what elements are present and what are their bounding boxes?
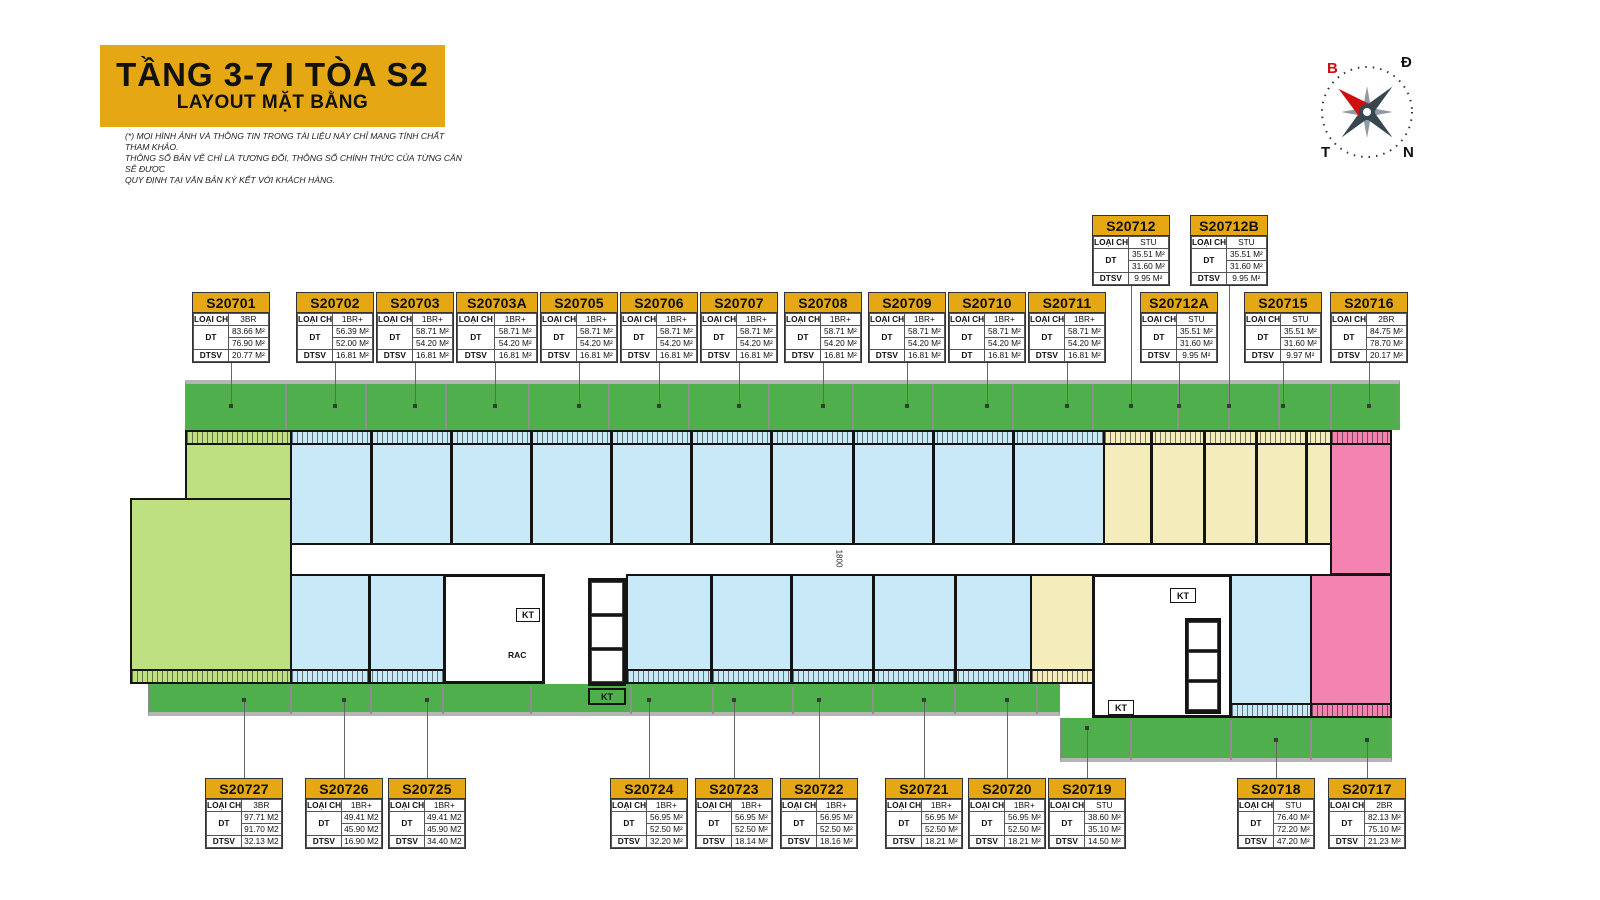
unit-balcony-label: DTSV (786, 350, 821, 362)
unit-area-label: DT (194, 326, 229, 350)
leader-dot (1005, 698, 1009, 702)
unit-card: S20707 LOẠI CH 1BR+ DT 58.71 M² 54.20 M²… (700, 292, 778, 363)
unit-info-table: LOẠI CH 1BR+ DT 56.39 M² 52.00 M² DTSV 1… (297, 313, 373, 362)
unit-card: S20712B LOẠI CH STU DT 35.51 M² 31.60 M²… (1190, 215, 1268, 286)
unit-card: S20727 LOẠI CH 3BR DT 97.71 M2 91.70 M2 … (205, 778, 283, 849)
unit-gross-area: 49.41 M2 (424, 812, 464, 824)
unit-net-area: 54.20 M² (412, 338, 452, 350)
unit-info-table: LOẠI CH 1BR+ DT 56.95 M² 52.50 M² DTSV 1… (781, 799, 857, 848)
unit-type-label: LOẠI CH (1192, 237, 1227, 249)
unit-area-label: DT (702, 326, 737, 350)
unit-code: S20703A (457, 293, 537, 313)
unit-net-area: 52.50 M² (816, 824, 856, 836)
unit-card: S20719 LOẠI CH STU DT 38.60 M² 35.10 M² … (1048, 778, 1126, 849)
leader-dot (425, 698, 429, 702)
unit-wall (1203, 430, 1206, 545)
disclaimer-line: (*) MỌI HÌNH ẢNH VÀ THÔNG TIN TRONG TÀI … (125, 131, 470, 153)
balcony-divider (608, 384, 610, 430)
unit-card: S20701 LOẠI CH 3BR DT 83.66 M² 76.90 M² … (192, 292, 270, 363)
unit-card: S20725 LOẠI CH 1BR+ DT 49.41 M2 45.90 M2… (388, 778, 466, 849)
unit-type-value: 1BR+ (984, 314, 1024, 326)
unit-gross-area: 83.66 M² (228, 326, 268, 338)
unit-balcony-label: DTSV (390, 836, 425, 848)
unit-net-area: 45.90 M2 (424, 824, 464, 836)
unit-code: S20702 (297, 293, 373, 313)
unit-type-value: STU (1084, 800, 1124, 812)
unit-code: S20712A (1141, 293, 1217, 313)
unit-code: S20726 (306, 779, 382, 799)
unit-info-table: LOẠI CH STU DT 35.51 M² 31.60 M² DTSV 9.… (1191, 236, 1267, 285)
unit-code: S20706 (621, 293, 697, 313)
balcony-divider (1310, 720, 1312, 760)
leader-dot (342, 698, 346, 702)
unit-balcony-label: DTSV (207, 836, 242, 848)
unit-info-table: LOẠI CH 2BR DT 84.75 M² 78.70 M² DTSV 20… (1331, 313, 1407, 362)
unit-gross-area: 56.95 M² (646, 812, 686, 824)
unit-balcony-area: 16.81 M² (820, 350, 860, 362)
unit-info-table: LOẠI CH 1BR+ DT 58.71 M² 54.20 M² DTSV 1… (701, 313, 777, 362)
unit-net-area: 31.60 M² (1280, 338, 1320, 350)
unit-net-area: 76.90 M² (228, 338, 268, 350)
unit-card: S20703 LOẠI CH 1BR+ DT 58.71 M² 54.20 M²… (376, 292, 454, 363)
balcony-divider (528, 384, 530, 430)
unit-code: S20722 (781, 779, 857, 799)
unit-block-yellow-upper (1103, 430, 1332, 545)
leader-dot (1065, 404, 1069, 408)
unit-net-area: 35.10 M² (1084, 824, 1124, 836)
unit-block-blue-lower-right (1230, 574, 1312, 718)
unit-balcony-label: DT (950, 350, 985, 362)
balcony-divider (688, 384, 690, 430)
unit-type-label: LOẠI CH (390, 800, 425, 812)
unit-type-label: LOẠI CH (702, 314, 737, 326)
unit-type-label: LOẠI CH (786, 314, 821, 326)
unit-balcony-label: DTSV (622, 350, 657, 362)
unit-balcony-label: DTSV (1246, 350, 1281, 362)
unit-net-area: 54.20 M² (494, 338, 536, 350)
unit-info-table: LOẠI CH 1BR+ DT 58.71 M² 54.20 M² DTSV 1… (541, 313, 617, 362)
unit-balcony-area: 16.81 M² (984, 350, 1024, 362)
unit-gross-area: 82.13 M² (1364, 812, 1404, 824)
unit-balcony-label: DTSV (458, 350, 495, 362)
unit-card: S20724 LOẠI CH 1BR+ DT 56.95 M² 52.50 M²… (610, 778, 688, 849)
unit-type-value: 1BR+ (736, 314, 776, 326)
unit-balcony-label: DTSV (1094, 273, 1129, 285)
leader-line (739, 360, 740, 406)
unit-card: S20721 LOẠI CH 1BR+ DT 56.95 M² 52.50 M²… (885, 778, 963, 849)
corridor (292, 545, 1330, 574)
unit-type-label: LOẠI CH (782, 800, 817, 812)
leader-line (1367, 740, 1368, 778)
unit-net-area: 54.20 M² (984, 338, 1024, 350)
unit-net-area: 52.50 M² (646, 824, 686, 836)
unit-balcony-label: DTSV (782, 836, 817, 848)
leader-dot (1281, 404, 1285, 408)
unit-type-value: STU (1128, 237, 1168, 249)
leader-line (1276, 740, 1277, 778)
kt-label-core-left: KT (516, 608, 540, 622)
unit-wall (770, 430, 773, 545)
unit-balcony-area: 9.95 M² (1128, 273, 1168, 285)
unit-type-label: LOẠI CH (1239, 800, 1274, 812)
unit-area-label: DT (622, 326, 657, 350)
unit-wall (1150, 430, 1153, 545)
unit-gross-area: 35.51 M² (1280, 326, 1320, 338)
unit-net-area: 54.20 M² (904, 338, 944, 350)
unit-code: S20711 (1029, 293, 1105, 313)
leader-dot (1367, 404, 1371, 408)
leader-line (924, 700, 925, 778)
unit-balcony-label: DTSV (1330, 836, 1365, 848)
elevator-bank-left-icon (588, 578, 626, 686)
unit-type-value: 3BR (241, 800, 281, 812)
unit-wall (530, 430, 533, 545)
unit-balcony-label: DTSV (298, 350, 333, 362)
unit-net-area: 52.50 M² (1004, 824, 1044, 836)
unit-type-label: LOẠI CH (1050, 800, 1085, 812)
unit-balcony-area: 9.97 M² (1280, 350, 1320, 362)
unit-info-table: LOẠI CH 1BR+ DT 58.71 M² 54.20 M² DTSV 1… (785, 313, 861, 362)
leader-dot (922, 698, 926, 702)
unit-balcony-area: 16.81 M² (656, 350, 696, 362)
leader-dot (229, 404, 233, 408)
unit-gross-area: 58.71 M² (576, 326, 616, 338)
balcony-divider (530, 686, 532, 714)
unit-balcony-label: DTSV (702, 350, 737, 362)
unit-net-area: 54.20 M² (656, 338, 696, 350)
unit-area-label: DT (1330, 812, 1365, 836)
unit-area-label: DT (298, 326, 333, 350)
unit-balcony-label: DTSV (697, 836, 732, 848)
unit-net-area: 54.20 M² (736, 338, 776, 350)
unit-net-area: 54.20 M² (1064, 338, 1104, 350)
unit-area-label: DT (390, 812, 425, 836)
unit-area-label: DT (458, 326, 495, 350)
kt-label-core-right-top: KT (1170, 588, 1196, 603)
unit-gross-area: 35.51 M² (1226, 249, 1266, 261)
rac-label: RAC (508, 650, 526, 660)
unit-info-table: LOẠI CH STU DT 38.60 M² 35.10 M² DTSV 14… (1049, 799, 1125, 848)
leader-line (987, 360, 988, 406)
unit-area-label: DT (612, 812, 647, 836)
balcony-divider (792, 686, 794, 714)
corridor-dimension-label: 1800 (834, 550, 843, 568)
unit-block-yellow-lower (1030, 574, 1094, 684)
unit-type-label: LOẠI CH (194, 314, 229, 326)
balcony-divider (852, 384, 854, 430)
unit-info-table: LOẠI CH 1BR+ DT 58.71 M² 54.20 M² DT 16.… (949, 313, 1025, 362)
unit-wall (450, 430, 453, 545)
unit-type-label: LOẠI CH (970, 800, 1005, 812)
unit-type-label: LOẠI CH (378, 314, 413, 326)
unit-wall (932, 430, 935, 545)
unit-net-area: 45.90 M2 (341, 824, 381, 836)
title-subtitle: LAYOUT MẶT BẰNG (177, 92, 369, 114)
unit-balcony-area: 18.16 M² (816, 836, 856, 848)
unit-card: S20702 LOẠI CH 1BR+ DT 56.39 M² 52.00 M²… (296, 292, 374, 363)
unit-type-value: STU (1280, 314, 1320, 326)
unit-card: S20720 LOẠI CH 1BR+ DT 56.95 M² 52.50 M²… (968, 778, 1046, 849)
unit-card: S20722 LOẠI CH 1BR+ DT 56.95 M² 52.50 M²… (780, 778, 858, 849)
unit-type-label: LOẠI CH (298, 314, 333, 326)
unit-gross-area: 56.95 M² (921, 812, 961, 824)
leader-line (335, 360, 336, 406)
page-title: TẦNG 3-7 I TÒA S2 LAYOUT MẶT BẰNG (100, 45, 445, 127)
unit-wall (610, 430, 613, 545)
unit-balcony-area: 16.81 M² (412, 350, 452, 362)
unit-wall (852, 430, 855, 545)
unit-type-value: 1BR+ (816, 800, 856, 812)
unit-code: S20725 (389, 779, 465, 799)
unit-card: S20703A LOẠI CH 1BR+ DT 58.71 M² 54.20 M… (456, 292, 538, 363)
unit-info-table: LOẠI CH 1BR+ DT 56.95 M² 52.50 M² DTSV 1… (696, 799, 772, 848)
leader-line (231, 360, 232, 406)
unit-type-label: LOẠI CH (207, 800, 242, 812)
unit-type-label: LOẠI CH (870, 314, 905, 326)
unit-card: S20716 LOẠI CH 2BR DT 84.75 M² 78.70 M² … (1330, 292, 1408, 363)
leader-line (244, 700, 245, 778)
unit-type-value: STU (1226, 237, 1266, 249)
unit-balcony-area: 47.20 M² (1273, 836, 1313, 848)
leader-line (649, 700, 650, 778)
unit-gross-area: 58.71 M² (412, 326, 452, 338)
balcony-band-bottom-right (1060, 718, 1392, 762)
unit-balcony-area: 16.81 M² (494, 350, 536, 362)
unit-type-value: 2BR (1364, 800, 1404, 812)
unit-card: S20712A LOẠI CH STU DT 35.51 M² 31.60 M²… (1140, 292, 1218, 363)
unit-code: S20719 (1049, 779, 1125, 799)
leader-line (1087, 728, 1088, 778)
unit-card: S20705 LOẠI CH 1BR+ DT 58.71 M² 54.20 M²… (540, 292, 618, 363)
unit-type-value: 1BR+ (341, 800, 381, 812)
leader-dot (242, 698, 246, 702)
leader-line (907, 360, 908, 406)
unit-balcony-area: 32.13 M2 (241, 836, 281, 848)
unit-gross-area: 56.95 M² (731, 812, 771, 824)
balcony-divider (1230, 720, 1232, 760)
balcony-divider (290, 686, 292, 714)
unit-block-blue-lower-mid (626, 574, 1032, 684)
unit-balcony-area: 16.81 M² (736, 350, 776, 362)
unit-info-table: LOẠI CH 1BR+ DT 49.41 M2 45.90 M2 DTSV 3… (389, 799, 465, 848)
leader-dot (333, 404, 337, 408)
unit-balcony-label: DTSV (612, 836, 647, 848)
unit-code: S20701 (193, 293, 269, 313)
elevator-bank-right-icon (1185, 618, 1221, 714)
unit-type-value: 1BR+ (576, 314, 616, 326)
kt-label-core-right-bottom: KT (1108, 700, 1134, 715)
unit-card: S20710 LOẠI CH 1BR+ DT 58.71 M² 54.20 M²… (948, 292, 1026, 363)
unit-code: S20718 (1238, 779, 1314, 799)
unit-gross-area: 58.71 M² (1064, 326, 1104, 338)
unit-info-table: LOẠI CH 3BR DT 97.71 M2 91.70 M2 DTSV 32… (206, 799, 282, 848)
unit-area-label: DT (870, 326, 905, 350)
leader-dot (413, 404, 417, 408)
unit-net-area: 31.60 M² (1226, 261, 1266, 273)
unit-area-label: DT (542, 326, 577, 350)
balcony-divider (1278, 384, 1280, 430)
balcony-divider (1092, 384, 1094, 430)
leader-dot (1365, 738, 1369, 742)
unit-gross-area: 35.51 M² (1128, 249, 1168, 261)
unit-info-table: LOẠI CH STU DT 35.51 M² 31.60 M² DTSV 9.… (1245, 313, 1321, 362)
unit-type-value: STU (1176, 314, 1216, 326)
unit-balcony-area: 20.77 M² (228, 350, 268, 362)
unit-code: S20707 (701, 293, 777, 313)
unit-area-label: DT (782, 812, 817, 836)
unit-type-label: LOẠI CH (950, 314, 985, 326)
unit-code: S20703 (377, 293, 453, 313)
leader-dot (1274, 738, 1278, 742)
unit-code: S20717 (1329, 779, 1405, 799)
unit-type-value: 1BR+ (412, 314, 452, 326)
balcony-divider (768, 384, 770, 430)
unit-card: S20723 LOẠI CH 1BR+ DT 56.95 M² 52.50 M²… (695, 778, 773, 849)
compass-north-label: B (1327, 60, 1338, 77)
floor-plan: 1800 KT RAC KT KT KT (130, 378, 1402, 768)
unit-wall (1255, 430, 1258, 545)
unit-balcony-label: DTSV (1192, 273, 1227, 285)
unit-net-area: 91.70 M2 (241, 824, 281, 836)
unit-type-value: 1BR+ (1004, 800, 1044, 812)
unit-gross-area: 56.39 M² (332, 326, 372, 338)
unit-card: S20706 LOẠI CH 1BR+ DT 58.71 M² 54.20 M²… (620, 292, 698, 363)
unit-balcony-area: 14.50 M² (1084, 836, 1124, 848)
leader-line (823, 360, 824, 406)
leader-dot (1085, 726, 1089, 730)
unit-code: S20723 (696, 779, 772, 799)
leader-dot (1227, 404, 1231, 408)
unit-area-label: DT (887, 812, 922, 836)
unit-info-table: LOẠI CH 3BR DT 83.66 M² 76.90 M² DTSV 20… (193, 313, 269, 362)
unit-wall (1012, 430, 1015, 545)
unit-area-label: DT (1094, 249, 1129, 273)
unit-area-label: DT (207, 812, 242, 836)
unit-area-label: DT (1332, 326, 1367, 350)
unit-balcony-label: DTSV (1332, 350, 1367, 362)
leader-dot (657, 404, 661, 408)
unit-info-table: LOẠI CH 1BR+ DT 58.71 M² 54.20 M² DTSV 1… (1029, 313, 1105, 362)
leader-dot (905, 404, 909, 408)
unit-type-label: LOẠI CH (1030, 314, 1065, 326)
unit-area-label: DT (1246, 326, 1281, 350)
leader-dot (821, 404, 825, 408)
unit-card: S20726 LOẠI CH 1BR+ DT 49.41 M2 45.90 M2… (305, 778, 383, 849)
unit-area-label: DT (697, 812, 732, 836)
unit-type-label: LOẠI CH (887, 800, 922, 812)
leader-line (427, 700, 428, 778)
unit-gross-area: 49.41 M2 (341, 812, 381, 824)
unit-balcony-area: 9.95 M² (1176, 350, 1216, 362)
unit-gross-area: 76.40 M² (1273, 812, 1313, 824)
unit-net-area: 75.10 M² (1364, 824, 1404, 836)
unit-wall (1305, 430, 1308, 545)
unit-card: S20712 LOẠI CH STU DT 35.51 M² 31.60 M² … (1092, 215, 1170, 286)
unit-info-table: LOẠI CH 1BR+ DT 56.95 M² 52.50 M² DTSV 1… (969, 799, 1045, 848)
unit-balcony-label: DTSV (307, 836, 342, 848)
balcony-divider (1036, 686, 1038, 714)
unit-type-value: 1BR+ (424, 800, 464, 812)
leader-line (1179, 360, 1180, 406)
disclaimer-line: QUY ĐỊNH TẠI VĂN BẢN KÝ KẾT VỚI KHÁCH HÀ… (125, 175, 470, 186)
leader-line (819, 700, 820, 778)
unit-balcony-label: DTSV (1142, 350, 1177, 362)
unit-card: S20709 LOẠI CH 1BR+ DT 58.71 M² 54.20 M²… (868, 292, 946, 363)
leader-line (1007, 700, 1008, 778)
unit-wall (872, 574, 875, 684)
unit-balcony-area: 16.90 M2 (341, 836, 381, 848)
balcony-divider (954, 686, 956, 714)
unit-area-label: DT (1239, 812, 1274, 836)
unit-type-value: 1BR+ (646, 800, 686, 812)
unit-code: S20721 (886, 779, 962, 799)
unit-card: S20708 LOẠI CH 1BR+ DT 58.71 M² 54.20 M²… (784, 292, 862, 363)
leader-line (1131, 283, 1132, 406)
unit-balcony-label: DTSV (378, 350, 413, 362)
unit-type-label: LOẠI CH (612, 800, 647, 812)
unit-balcony-area: 18.21 M² (921, 836, 961, 848)
leader-line (1369, 360, 1370, 406)
unit-balcony-label: DTSV (194, 350, 229, 362)
unit-balcony-label: DTSV (970, 836, 1005, 848)
unit-type-label: LOẠI CH (1142, 314, 1177, 326)
unit-type-label: LOẠI CH (1246, 314, 1281, 326)
unit-code: S20715 (1245, 293, 1321, 313)
compass-south-label: N (1403, 144, 1414, 161)
unit-balcony-area: 9.95 M² (1226, 273, 1266, 285)
unit-wall (954, 574, 957, 684)
unit-balcony-area: 16.81 M² (332, 350, 372, 362)
unit-type-label: LOẠI CH (458, 314, 495, 326)
unit-net-area: 52.50 M² (731, 824, 771, 836)
unit-info-table: LOẠI CH 1BR+ DT 49.41 M2 45.90 M2 DTSV 1… (306, 799, 382, 848)
unit-info-table: LOẠI CH 1BR+ DT 58.71 M² 54.20 M² DTSV 1… (869, 313, 945, 362)
unit-type-value: STU (1273, 800, 1313, 812)
leader-dot (493, 404, 497, 408)
unit-area-label: DT (1142, 326, 1177, 350)
unit-code: S20708 (785, 293, 861, 313)
unit-balcony-area: 16.81 M² (904, 350, 944, 362)
unit-type-value: 1BR+ (820, 314, 860, 326)
leader-line (1283, 360, 1284, 406)
unit-info-table: LOẠI CH 1BR+ DT 56.95 M² 52.50 M² DTSV 3… (611, 799, 687, 848)
unit-type-value: 1BR+ (904, 314, 944, 326)
unit-type-value: 1BR+ (1064, 314, 1104, 326)
unit-code: S20716 (1331, 293, 1407, 313)
unit-balcony-area: 32.20 M² (646, 836, 686, 848)
unit-type-label: LOẠI CH (697, 800, 732, 812)
unit-type-label: LOẠI CH (307, 800, 342, 812)
leader-line (1229, 283, 1230, 406)
unit-block-blue-upper (290, 430, 1105, 545)
unit-net-area: 31.60 M² (1176, 338, 1216, 350)
unit-area-label: DT (1030, 326, 1065, 350)
leader-dot (647, 698, 651, 702)
unit-type-label: LOẠI CH (1094, 237, 1129, 249)
unit-info-table: LOẠI CH STU DT 35.51 M² 31.60 M² DTSV 9.… (1141, 313, 1217, 362)
unit-gross-area: 97.71 M2 (241, 812, 281, 824)
unit-net-area: 54.20 M² (576, 338, 616, 350)
unit-area-label: DT (378, 326, 413, 350)
balcony-divider (872, 686, 874, 714)
unit-gross-area: 58.71 M² (984, 326, 1024, 338)
unit-area-label: DT (786, 326, 821, 350)
unit-info-table: LOẠI CH STU DT 35.51 M² 31.60 M² DTSV 9.… (1093, 236, 1169, 285)
unit-type-value: 2BR (1366, 314, 1406, 326)
unit-area-label: DT (307, 812, 342, 836)
unit-type-value: 1BR+ (494, 314, 536, 326)
leader-dot (817, 698, 821, 702)
